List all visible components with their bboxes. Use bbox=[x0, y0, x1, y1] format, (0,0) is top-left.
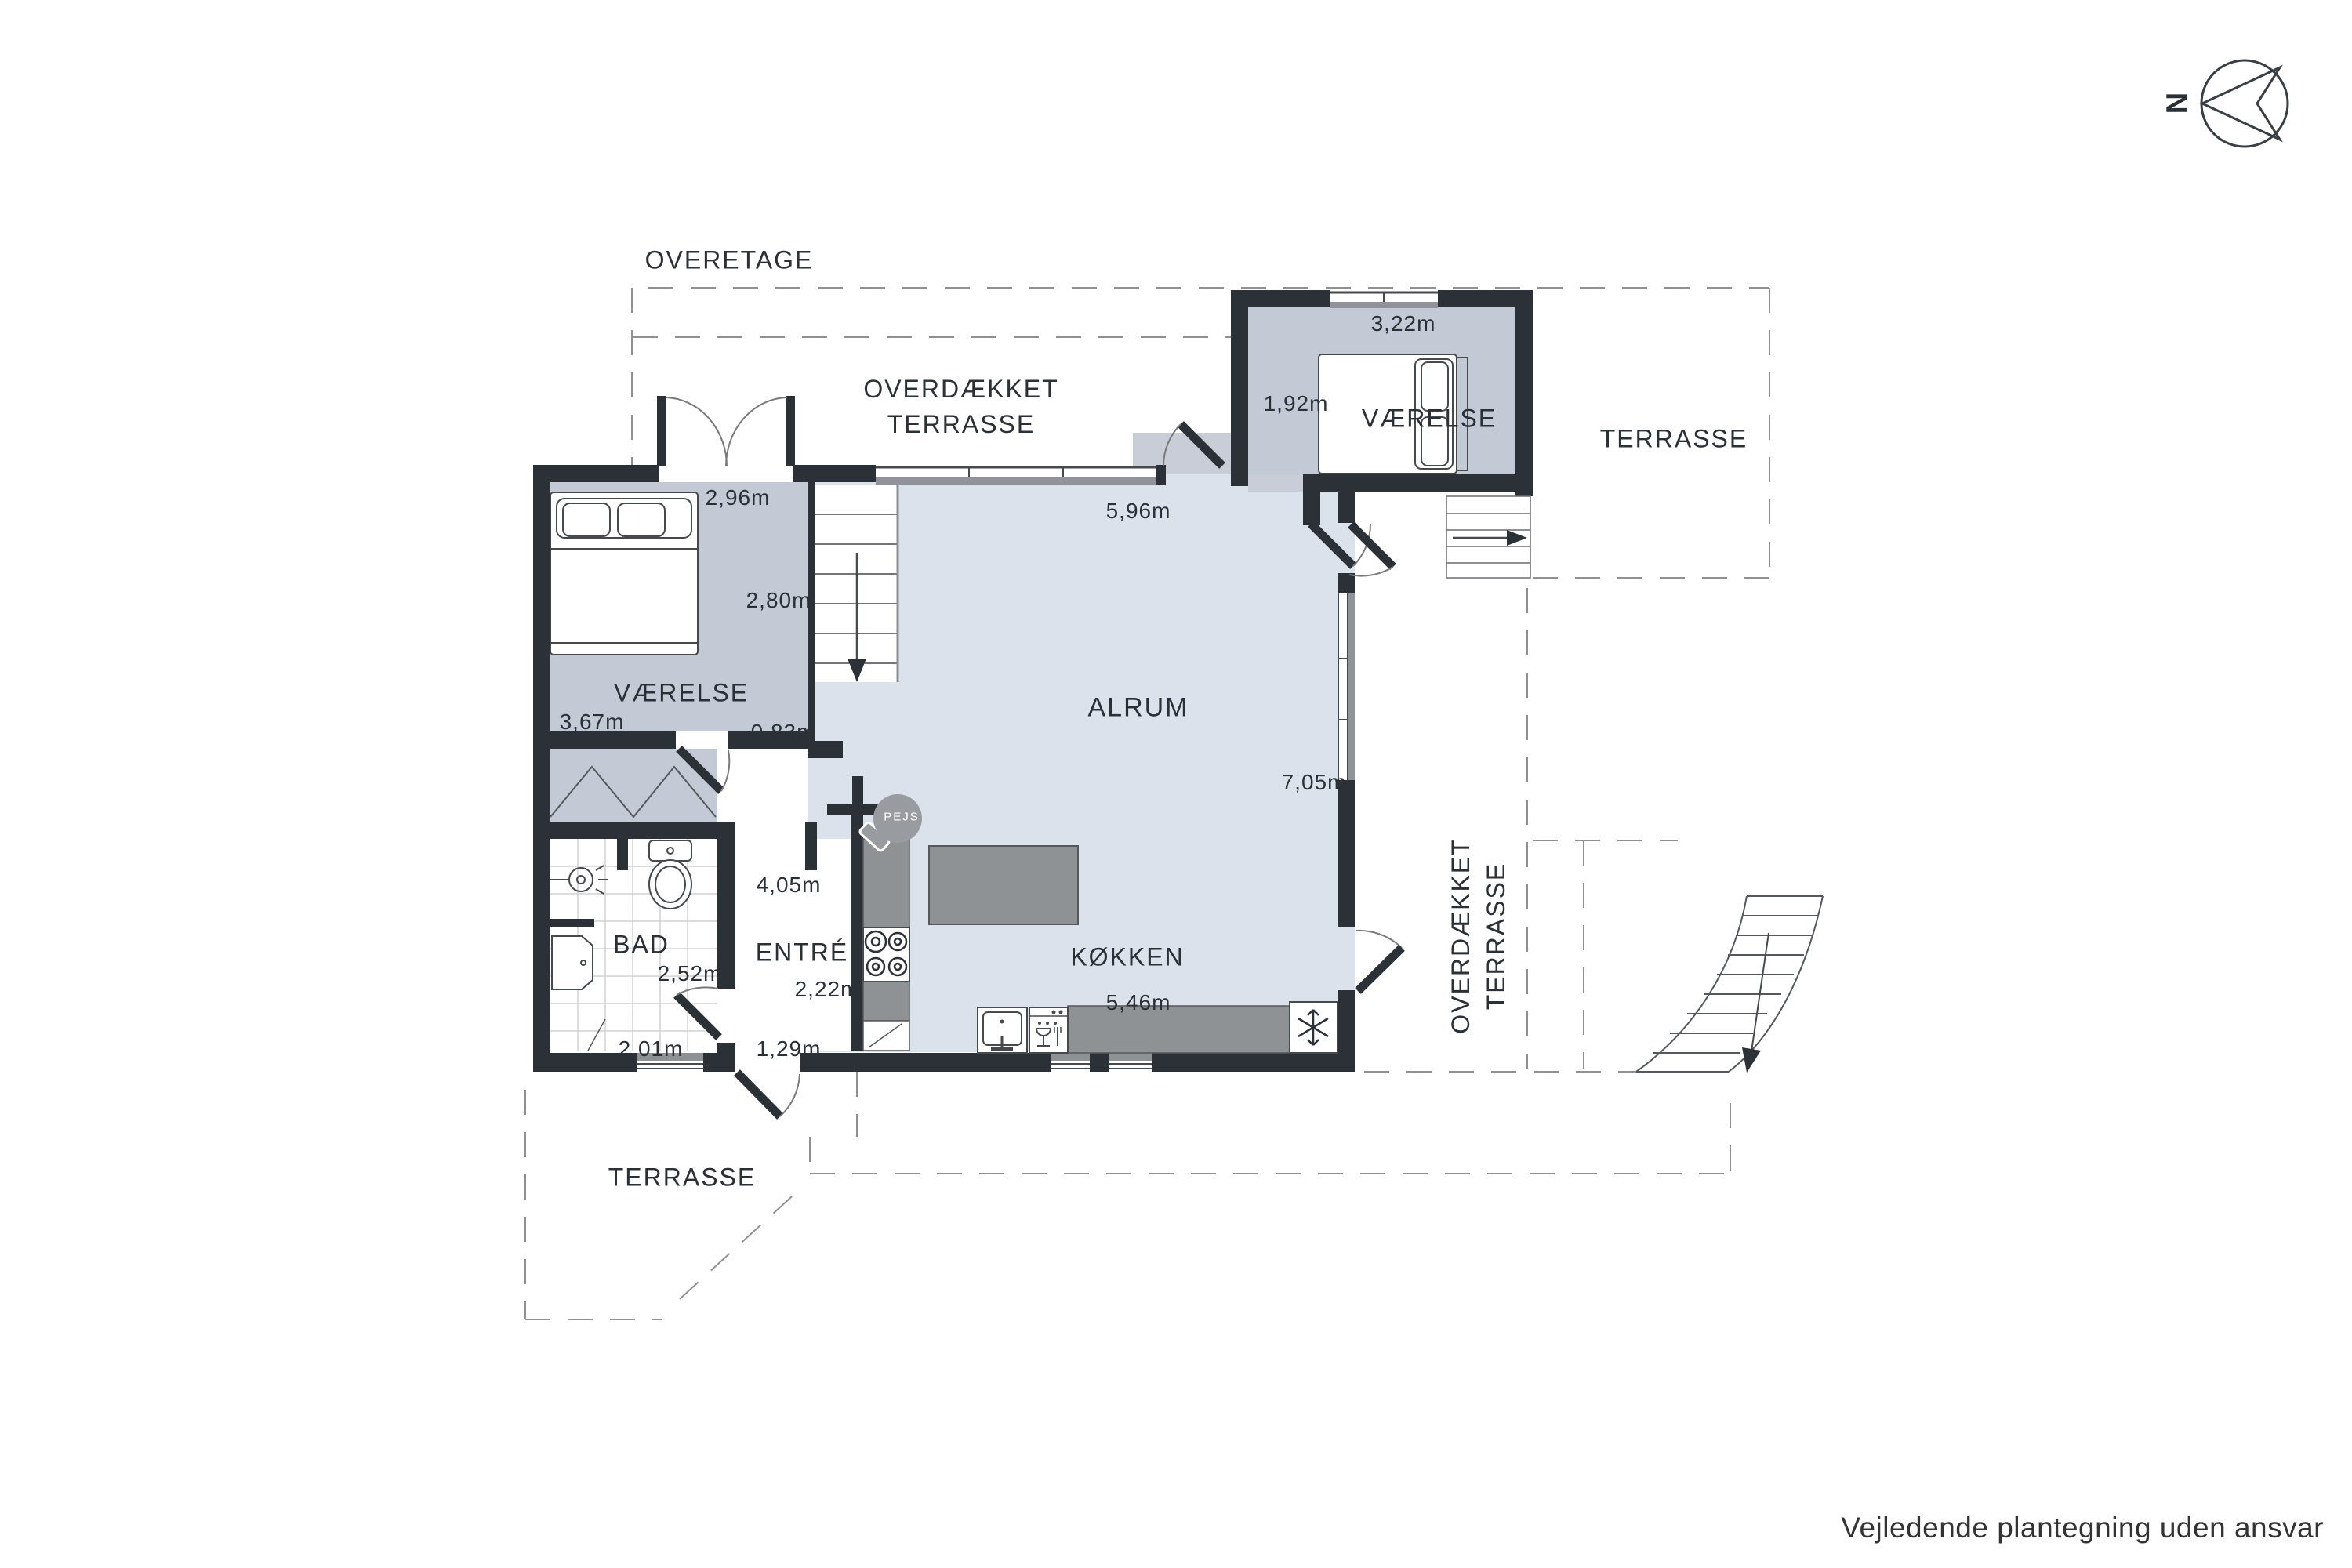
double-door bbox=[657, 396, 795, 466]
compass-icon bbox=[2201, 60, 2288, 147]
room-label-alrum: ALRUM bbox=[1087, 693, 1189, 724]
entry-door-dim: 1,29m bbox=[757, 1036, 822, 1062]
alrum-width-dim: 5,96m bbox=[1106, 499, 1171, 524]
floor-plan-page: OVERETAGE OVERDÆKKET TERRASSE 3,22m 1,92… bbox=[0, 0, 2352, 1568]
double-bed-icon bbox=[550, 492, 698, 655]
room-label-terrasse-top: TERRASSE bbox=[1600, 425, 1748, 454]
kitchen-island bbox=[929, 846, 1078, 924]
koekken-width-dim: 5,46m bbox=[1106, 990, 1171, 1015]
bathroom-sink-icon bbox=[552, 936, 593, 989]
interior-staircase bbox=[815, 485, 898, 682]
disclaimer-text: Vejledende plantegning uden ansvar bbox=[1841, 1512, 2324, 1544]
kitchen-sink-icon bbox=[978, 1007, 1027, 1053]
entre-width-dim: 2,22m bbox=[795, 977, 860, 1002]
vaerelse-height-dim: 3,67m bbox=[560, 710, 625, 735]
room-label-bad: BAD bbox=[613, 931, 670, 960]
dishwasher-icon bbox=[1029, 1007, 1068, 1053]
toilet-icon bbox=[649, 840, 691, 909]
alrum-depth-dim: 7,05m bbox=[1282, 770, 1347, 795]
entry-door bbox=[737, 1073, 800, 1116]
covered-terrace-top-label: OVERDÆKKET TERRASSE bbox=[863, 372, 1058, 442]
vaerelse-width-dim: 2,96m bbox=[706, 485, 771, 510]
annex-depth-dim: 1,92m bbox=[1264, 391, 1329, 416]
alrum-east-door bbox=[1349, 524, 1393, 576]
fridge-icon bbox=[1290, 1002, 1338, 1053]
floor-plan-drawing bbox=[0, 0, 2352, 1568]
fireplace-label: PEJS bbox=[884, 811, 920, 824]
overetage-label: OVERETAGE bbox=[645, 246, 814, 275]
room-label-koekken: KØKKEN bbox=[1070, 943, 1184, 972]
curved-stair-down-arrow-icon bbox=[1742, 1047, 1761, 1073]
vaerelse-depth-dim: 2,80m bbox=[746, 588, 811, 613]
kitchen-west-counter bbox=[863, 839, 909, 1051]
room-label-vaerelse-annex: VÆRELSE bbox=[1362, 405, 1497, 434]
curved-exterior-stairs bbox=[1636, 896, 1823, 1073]
covered-terrace-right-label: OVERDÆKKET TERRASSE bbox=[1443, 838, 1514, 1033]
entre-depth-dim: 4,05m bbox=[757, 873, 822, 898]
room-label-terrasse-bottom: TERRASSE bbox=[608, 1163, 756, 1192]
annex-width-dim: 3,22m bbox=[1371, 311, 1436, 336]
bad-width-dim: 2,52m bbox=[658, 961, 723, 986]
room-label-entre: ENTRÉ bbox=[756, 938, 848, 967]
bad-lower-width-dim: 2,01m bbox=[619, 1036, 684, 1062]
hall-width-dim: 0,83m bbox=[751, 720, 816, 745]
annex-exterior-stairs bbox=[1446, 496, 1530, 578]
kitchen-east-door bbox=[1356, 931, 1402, 991]
compass-north-label: N bbox=[2161, 92, 2195, 114]
room-label-vaerelse-left: VÆRELSE bbox=[614, 679, 749, 708]
